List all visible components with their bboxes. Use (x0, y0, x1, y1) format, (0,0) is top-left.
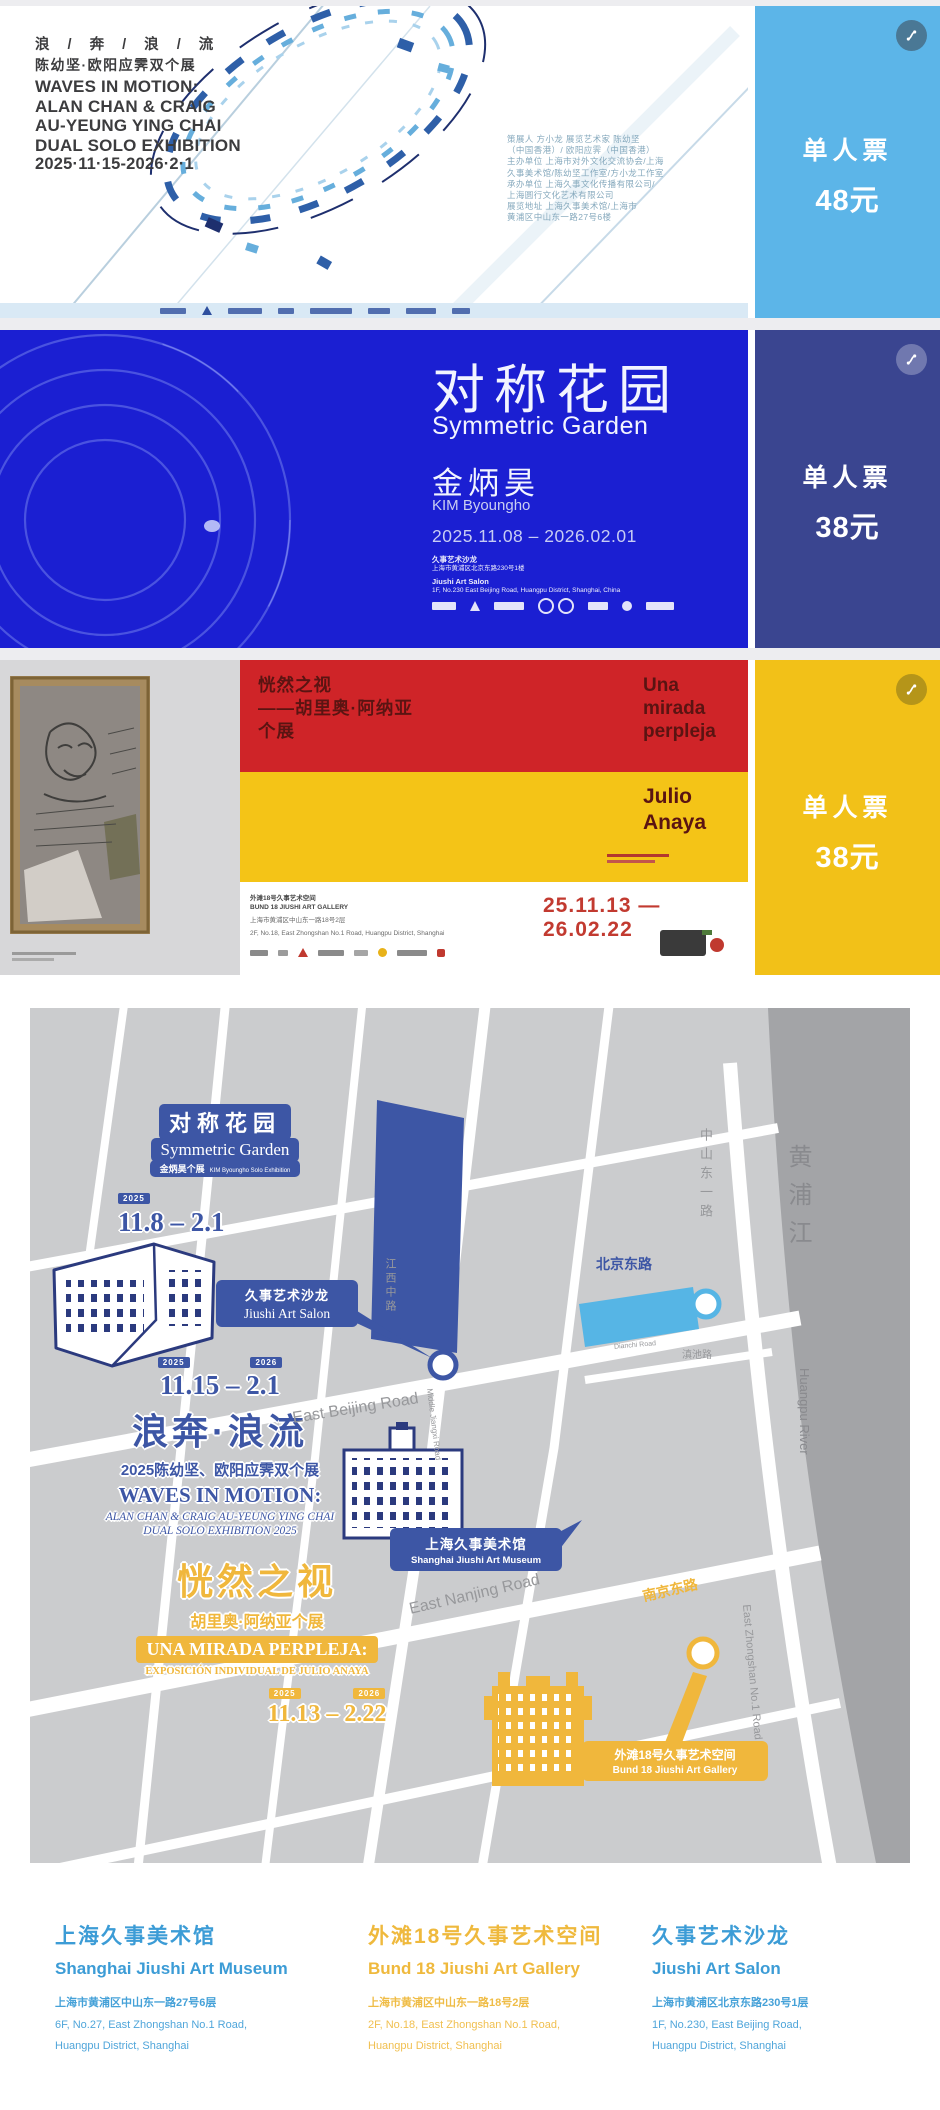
price-label: 单人票 (755, 788, 940, 824)
ticket3-info-band: 外滩18号久事艺术空间 BUND 18 JIUSHI ART GALLERY 上… (240, 882, 748, 975)
dates-text: 11.8 – 2.1 (118, 1207, 225, 1238)
venue-name-en: Shanghai Jiushi Art Museum (55, 1959, 355, 1979)
museum-location-marker (693, 1291, 719, 1317)
venue-name-zh: 外滩18号久事艺术空间 (368, 1920, 648, 1950)
partner-logo (318, 950, 344, 956)
callout-en: Bund 18 Jiushi Art Gallery (586, 1765, 764, 1776)
venue-name-zh: 上海久事美术馆 (55, 1920, 355, 1950)
fine-print-placeholder (607, 860, 655, 863)
partner-logo (558, 598, 574, 614)
title-line: WAVES IN MOTION: (35, 77, 241, 97)
credit-line: 主办单位 上海市对外文化交流协会/上海 (507, 156, 664, 167)
photo-caption-placeholder (12, 952, 76, 955)
title-line: ——胡里奥·阿纳亚 (258, 697, 413, 720)
venue-name-en: Jiushi Art Salon (652, 1959, 922, 1979)
map-callout-jiushi-art-salon: 久事艺术沙龙 Jiushi Art Salon (216, 1280, 358, 1327)
partner-logo (378, 948, 387, 957)
symmetric-garden-dates: 2025 11.8 – 2.1 (118, 1188, 225, 1238)
map-callout-symmetric-garden: 对称花园 Symmetric Garden 金炳昊个展 KIM Byoungho… (90, 1104, 360, 1175)
divider (0, 648, 940, 660)
ticket3-title-es: Una mirada perpleja (643, 674, 716, 743)
venue-addr-zh: 上海市黄浦区中山东一路27号6层 (55, 1994, 355, 2010)
price-label: 单人票 (755, 458, 940, 494)
ticket-card-waves-in-motion[interactable]: 浪 / 奔 / 浪 / 流 陈幼坚·欧阳应霁双个展 WAVES IN MOTIO… (0, 6, 940, 318)
partner-logo (202, 306, 212, 315)
partner-logo (437, 949, 445, 957)
exhibition-title-en: Symmetric Garden (151, 1138, 300, 1162)
partner-logo (406, 308, 436, 314)
ticket1-title: 浪 / 奔 / 浪 / 流 陈幼坚·欧阳应霁双个展 WAVES IN MOTIO… (35, 36, 241, 175)
partner-logo (622, 601, 632, 611)
fine-print-placeholder (607, 854, 669, 857)
info-line: 上海市黄浦区中山东一路18号2层 (250, 916, 444, 925)
ticket2-title-en: Symmetric Garden (432, 412, 648, 441)
year-chips: 2025 2026 (55, 1352, 385, 1370)
share-icon[interactable] (896, 20, 927, 51)
venue-name-en: Bund 18 Jiushi Art Gallery (368, 1959, 648, 1979)
partner-logo-strip (0, 303, 748, 318)
partner-logo (278, 308, 294, 314)
exhibition-subtitle-zh: 2025陈幼坚、欧阳应霁双个展 (55, 1459, 385, 1480)
exhibition-subtitle: 金炳昊个展 KIM Byoungho Solo Exhibition (150, 1160, 301, 1177)
credit-line: （中国香港）/ 欧阳应霁（中国香港） (507, 145, 664, 156)
ticket3-yellow-band: Julio Anaya (240, 772, 748, 882)
ticket1-price-panel: 单人票 48元 (755, 6, 940, 318)
partner-logo (397, 950, 427, 956)
partner-logo (278, 950, 288, 956)
exhibition-subtitle-es: EXPOSICIÓN INDIVIDUAL DE JULIO ANAYA (92, 1666, 422, 1677)
ticket-card-symmetric-garden[interactable]: 对称花园 Symmetric Garden 金炳昊 KIM Byoungho 2… (0, 330, 940, 648)
dates-text: 11.15 – 2.1 (55, 1370, 385, 1401)
exhibition-subtitle-zh: 胡里奥·阿纳亚个展 (92, 1608, 422, 1632)
title-line: Una (643, 674, 716, 697)
partner-logo (470, 601, 480, 611)
year-chip: 2026 (353, 1688, 385, 1699)
partner-logo (432, 602, 456, 610)
partner-logo (160, 308, 186, 314)
year-chip: 2026 (250, 1357, 282, 1368)
credit-line: 黄浦区中山东一路27号6楼 (507, 212, 664, 223)
venue-name-zh: 久事艺术沙龙 (652, 1920, 922, 1950)
partner-logo (228, 308, 262, 314)
title-line: perpleja (643, 720, 716, 743)
subtitle-zh: 金炳昊个展 (160, 1164, 205, 1174)
partner-logo (310, 308, 352, 314)
price-value: 48元 (755, 177, 940, 219)
gallery-stamp (660, 930, 706, 956)
ticket2-artwork-panel: 对称花园 Symmetric Garden 金炳昊 KIM Byoungho 2… (0, 330, 748, 648)
info-line: 外滩18号久事艺术空间 (250, 894, 444, 903)
exhibition-title-zh: 对称花园 (159, 1104, 291, 1140)
salon-location-marker (430, 1352, 456, 1378)
venue-addr-en: Huangpu District, Shanghai (652, 2040, 922, 2052)
title-line: 浪 / 奔 / 浪 / 流 (35, 36, 241, 56)
year-chip: 2025 (269, 1688, 301, 1699)
year-chip: 2025 (158, 1357, 190, 1368)
venue-address-salon: 久事艺术沙龙 Jiushi Art Salon 上海市黄浦区北京东路230号1层… (652, 1920, 922, 2052)
partner-logo (494, 602, 524, 610)
exhibition-title-zh: 恍然之视 (92, 1553, 422, 1605)
artist-line: Julio (643, 784, 706, 810)
price-value: 38元 (755, 834, 940, 876)
callout-zh: 久事艺术沙龙 (220, 1285, 354, 1304)
gallery-stamp-mark (702, 930, 712, 935)
dates-text: 11.13 – 2.22 (232, 1701, 422, 1728)
credit-line: 策展人 方小龙 展览艺术家 陈幼坚 (507, 134, 664, 145)
bund18-location-marker (689, 1639, 717, 1667)
venue-addr-en: 6F, No.27, East Zhongshan No.1 Road, (55, 2019, 355, 2031)
title-line: AU-YEUNG YING CHAI (35, 116, 241, 136)
price-value: 38元 (755, 504, 940, 546)
info-line: BUND 18 JIUSHI ART GALLERY (250, 903, 444, 912)
road-label-dianchi-zh: 滇池路 (682, 1346, 712, 1361)
exhibition-title-es: UNA MIRADA PERPLEJA: (136, 1636, 377, 1663)
venue-addr-en: Huangpu District, Shanghai (368, 2040, 648, 2052)
title-line: 2025·11·15-2026·2·1 (35, 155, 241, 175)
partner-logo (368, 308, 390, 314)
perpleja-dates: 2025 2026 11.13 – 2.22 (232, 1683, 422, 1728)
ticket3-price-panel: 单人票 38元 (755, 660, 940, 975)
title-line: 陈幼坚·欧阳应霁双个展 (35, 56, 241, 76)
venue-addr-en: 2F, No.18, East Zhongshan No.1 Road, (368, 2019, 648, 2031)
map-callout-bund18-gallery: 外滩18号久事艺术空间 Bund 18 Jiushi Art Gallery (582, 1741, 768, 1781)
ticket1-credits: 策展人 方小龙 展览艺术家 陈幼坚 （中国香港）/ 欧阳应霁（中国香港） 主办单… (507, 134, 664, 224)
ticket3-venue-info: 外滩18号久事艺术空间 BUND 18 JIUSHI ART GALLERY 上… (250, 894, 444, 938)
road-label-beijing-zh: 北京东路 (596, 1254, 652, 1274)
ticket2-dates: 2025.11.08 – 2026.02.01 (432, 526, 637, 547)
venue-addr-en: 1F, No.230, East Beijing Road, (652, 2019, 922, 2031)
ticket2-venue: 久事艺术沙龙 上海市黄浦区北京东路230号1楼 Jiushi Art Salon… (432, 551, 620, 595)
venue-line: Jiushi Art Salon (432, 577, 620, 586)
map-callout-waves-in-motion: 2025 2026 11.15 – 2.1 浪奔·浪流 2025陈幼坚、欧阳应霁… (55, 1352, 385, 1537)
ticket-card-una-mirada-perpleja[interactable]: 恍然之视 ——胡里奥·阿纳亚 个展 Una mirada perpleja Ju… (0, 660, 940, 975)
road-label-jiangxi-zh: 江西中路 (382, 1258, 398, 1314)
photo-caption-placeholder (12, 958, 54, 961)
divider (0, 318, 940, 330)
partner-logo (646, 602, 674, 610)
ticket-listing-page: 浪 / 奔 / 浪 / 流 陈幼坚·欧阳应霁双个展 WAVES IN MOTIO… (0, 0, 940, 2110)
ticket3-dates: 25.11.13 — 26.02.22 (543, 894, 748, 942)
callout-zh: 上海久事美术馆 (394, 1533, 558, 1553)
river-label-en: Huangpu River (797, 1368, 812, 1455)
year-chip: 2025 (118, 1193, 150, 1204)
artist-line: Anaya (643, 810, 706, 836)
exhibition-subtitle-en: ALAN CHAN & CRAIG AU-YEUNG YING CHAI (55, 1511, 385, 1523)
jiushi-art-salon-block (371, 1100, 464, 1353)
share-icon[interactable] (896, 674, 927, 705)
info-line: 2F, No.18, East Zhongshan No.1 Road, Hua… (250, 929, 444, 938)
credit-line: 承办单位 上海久事文化传播有限公司/ (507, 179, 664, 190)
title-line: ALAN CHAN & CRAIG (35, 97, 241, 117)
river-label-zh: 黄浦江 (780, 1144, 815, 1258)
ticket3-red-band: 恍然之视 ——胡里奥·阿纳亚 个展 Una mirada perpleja (240, 660, 748, 772)
exhibition-subtitle-en: DUAL SOLO EXHIBITION 2025 (55, 1525, 385, 1537)
partner-logo-strip (432, 598, 674, 614)
price-label: 单人票 (755, 131, 940, 167)
venue-line: 久事艺术沙龙 (432, 555, 620, 564)
partner-logo (354, 950, 368, 956)
callout-zh: 外滩18号久事艺术空间 (586, 1746, 764, 1763)
ticket3-artist: Julio Anaya (643, 784, 706, 836)
venue-line: 1F, No.230 East Beijing Road, Huangpu Di… (432, 586, 620, 595)
painting-weeping-woman (8, 674, 154, 944)
title-line: mirada (643, 697, 716, 720)
title-line: 恍然之视 (258, 674, 413, 697)
credit-line: 展览地址 上海久事美术馆/上海市 (507, 201, 664, 212)
partner-logo (452, 308, 470, 314)
venue-addr-en: Huangpu District, Shanghai (55, 2040, 355, 2052)
title-line: 个展 (258, 720, 413, 743)
ticket3-artwork-photo (0, 660, 240, 975)
map-callout-una-mirada-perpleja: 恍然之视 胡里奥·阿纳亚个展 UNA MIRADA PERPLEJA: EXPO… (92, 1553, 422, 1728)
exhibition-title-en: WAVES IN MOTION: (55, 1483, 385, 1508)
ticket1-artwork-panel: 浪 / 奔 / 浪 / 流 陈幼坚·欧阳应霁双个展 WAVES IN MOTIO… (0, 6, 748, 318)
ticket2-artist-en: KIM Byoungho (432, 497, 530, 514)
road-label-zhongshan-zh: 中山东一路 (696, 1128, 715, 1223)
venue-line: 上海市黄浦区北京东路230号1楼 (432, 564, 620, 573)
ticket3-title-zh: 恍然之视 ——胡里奥·阿纳亚 个展 (258, 674, 413, 743)
share-icon[interactable] (896, 344, 927, 375)
subtitle-en: KIM Byoungho Solo Exhibition (210, 1168, 291, 1174)
partner-logo (538, 598, 554, 614)
callout-en: Jiushi Art Salon (220, 1306, 354, 1322)
title-line: DUAL SOLO EXHIBITION (35, 136, 241, 156)
partner-logo (298, 948, 308, 957)
partner-logo-strip (250, 948, 445, 957)
venues-map: 对称花园 Symmetric Garden 金炳昊个展 KIM Byoungho… (30, 1008, 910, 1863)
credit-line: 上海圆行文化艺术有限公司 (507, 190, 664, 201)
venue-address-museum: 上海久事美术馆 Shanghai Jiushi Art Museum 上海市黄浦… (55, 1920, 355, 2052)
ticket2-price-panel: 单人票 38元 (755, 330, 940, 648)
venue-address-bund18: 外滩18号久事艺术空间 Bund 18 Jiushi Art Gallery 上… (368, 1920, 648, 2052)
partner-logo (250, 950, 268, 956)
credit-line: 久事美术馆/陈幼坚工作室/方小龙工作室 (507, 168, 664, 179)
partner-logo (588, 602, 608, 610)
bund18-building-illustration (484, 1672, 592, 1786)
venue-addr-zh: 上海市黄浦区中山东一路18号2层 (368, 1994, 648, 2010)
gallery-stamp-seal (710, 938, 724, 952)
venue-addr-zh: 上海市黄浦区北京东路230号1层 (652, 1994, 922, 2010)
